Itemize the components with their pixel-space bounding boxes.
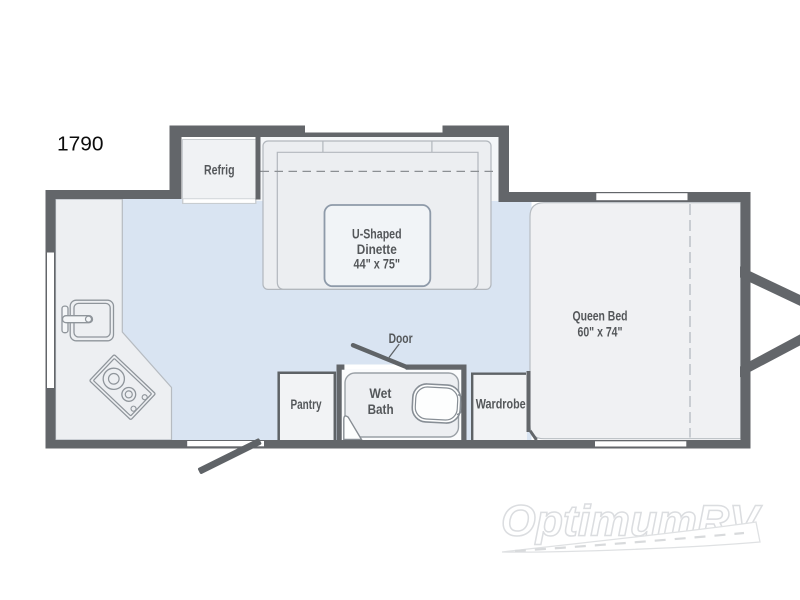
svg-text:60" x 74": 60" x 74" — [578, 325, 623, 341]
svg-text:Door: Door — [389, 331, 413, 347]
svg-text:44" x 75": 44" x 75" — [354, 257, 401, 273]
svg-text:Pantry: Pantry — [291, 397, 322, 413]
svg-text:U-Shaped: U-Shaped — [352, 226, 402, 242]
svg-text:Refrig: Refrig — [204, 163, 235, 179]
svg-text:Wet: Wet — [369, 386, 391, 402]
svg-text:Wardrobe: Wardrobe — [476, 396, 526, 412]
svg-text:Queen Bed: Queen Bed — [573, 309, 628, 325]
svg-text:Bath: Bath — [368, 402, 394, 418]
svg-text:1790: 1790 — [57, 134, 104, 156]
